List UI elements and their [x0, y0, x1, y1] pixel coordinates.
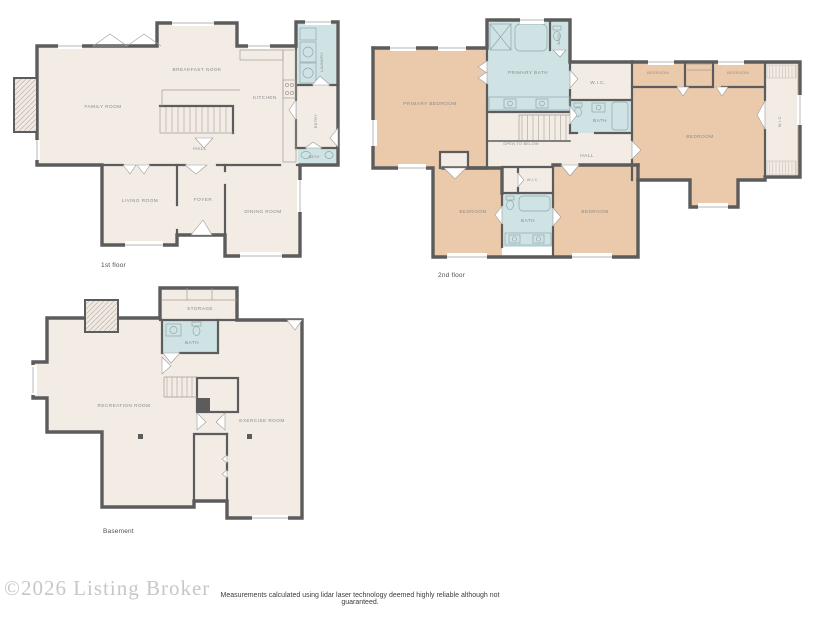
laundry-label: LAUNDRY [320, 52, 324, 72]
foyer-label: FOYER [194, 197, 213, 202]
bath-hall-label: BATH [593, 118, 607, 123]
listing-broker-watermark: ©2026 Listing Broker [4, 576, 210, 601]
bedroom-top-right-label: BEDROOM [727, 71, 749, 75]
basement-caption: Basement [103, 528, 134, 535]
dining-room-label: DINING ROOM [244, 209, 281, 214]
measurement-disclaimer: Measurements calculated using lidar lase… [220, 592, 500, 606]
bath-first-label: BATH [308, 155, 319, 159]
support-post [138, 434, 143, 439]
family-room-label: FAMILY ROOM [84, 104, 121, 109]
bath-bottom-label: BATH [521, 218, 535, 223]
breakfast-nook-label: BREAKFAST NOOK [173, 67, 222, 72]
floorplan-canvas: FAMILY ROOM BREAKFAST NOOK KITCHEN LAUND… [0, 0, 825, 619]
primary-bedroom [373, 48, 487, 168]
first-floor-caption: 1st floor [101, 262, 127, 269]
basement-bath-label: BATH [185, 340, 199, 345]
bedroom-large-label: BEDROOM [686, 134, 713, 139]
basement-fireplace [85, 300, 118, 332]
storage-label: STORAGE [187, 306, 213, 311]
recreation-room-label: RECREATION ROOM [97, 403, 150, 408]
water-closet-label: BATH [557, 33, 561, 44]
second-floor-plan: PRIMARY BEDROOM PRIMARY BATH BATH W.I.C.… [370, 17, 804, 279]
first-floor-plan: FAMILY ROOM BREAKFAST NOOK KITCHEN LAUND… [14, 18, 338, 269]
hall-first-label: HALL [193, 146, 207, 151]
wic-hall-label: W.I.C. [590, 80, 605, 85]
open-to-below-label: OPEN TO BELOW [503, 142, 539, 146]
basement-bath-room [162, 320, 218, 353]
window-seat-bays [93, 34, 161, 46]
bedroom-bottom-right-label: BEDROOM [581, 209, 608, 214]
wic-right-label: W.I.C. [778, 115, 782, 127]
second-floor-caption: 2nd floor [438, 272, 466, 279]
entry-label: ENTRY [314, 114, 318, 128]
living-room-label: LIVING ROOM [122, 198, 158, 203]
bedroom-bottom-left-label: BEDROOM [459, 209, 486, 214]
support-post [247, 434, 252, 439]
exercise-room-label: EXERCISE ROOM [239, 418, 284, 423]
primary-bath-label: PRIMARY BATH [508, 70, 548, 75]
primary-bedroom-closet [440, 152, 468, 168]
kitchen-label: KITCHEN [253, 95, 277, 100]
first-floor-footprint [37, 22, 338, 256]
primary-bedroom-label: PRIMARY BEDROOM [403, 101, 456, 106]
fireplace [14, 78, 37, 132]
wic-small-label: W.I.C. [527, 178, 539, 182]
bedroom-top-left-label: BEDROOM [647, 71, 669, 75]
basement-plan: STORAGE BATH RECREATION ROOM EXERCISE RO… [30, 288, 302, 535]
hall-second-label: HALL [580, 153, 594, 158]
